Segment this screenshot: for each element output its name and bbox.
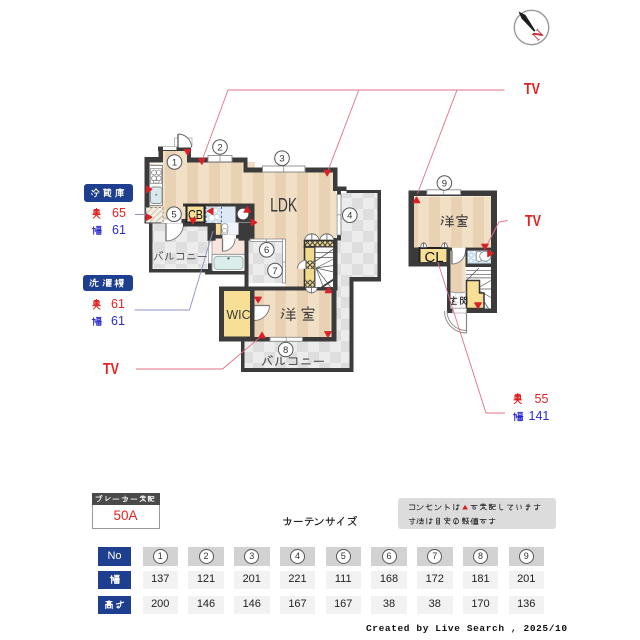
svg-text:2: 2 (217, 142, 222, 153)
svg-text:7: 7 (272, 266, 277, 277)
svg-text:WIC: WIC (227, 307, 251, 322)
svg-text:1: 1 (172, 157, 177, 168)
svg-text:3: 3 (279, 154, 284, 165)
svg-text:4: 4 (347, 211, 352, 222)
svg-text:CL: CL (425, 249, 444, 266)
svg-text:6: 6 (264, 245, 269, 256)
svg-text:LDK: LDK (270, 196, 297, 217)
svg-text:9: 9 (442, 178, 447, 189)
svg-text:5: 5 (171, 210, 176, 221)
